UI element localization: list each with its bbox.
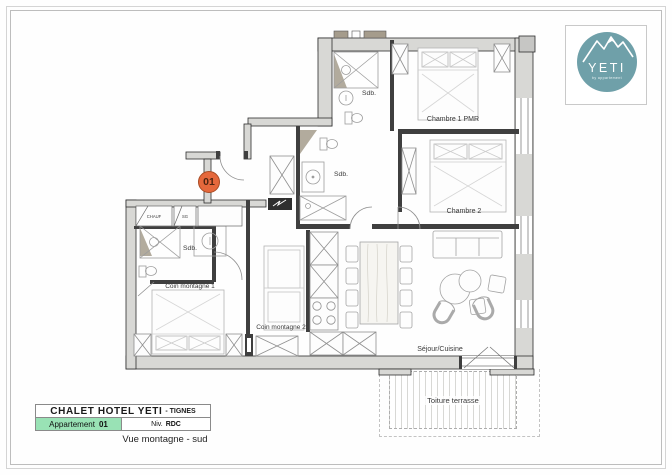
apartment-number: 01: [99, 420, 108, 429]
apartment-label: Appartement: [49, 420, 95, 429]
yeti-logo: YETI by appartement: [577, 32, 637, 92]
duct-symbols: [334, 31, 386, 38]
living-furniture: [346, 231, 506, 328]
hotel-name: CHALET HOTEL YETI: [50, 406, 162, 417]
title-block-header: CHALET HOTEL YETI - TIGNES: [36, 405, 210, 418]
room-label-sejour: Séjour/Cuisine: [417, 346, 463, 353]
room-label-coin1: Coin montagne 1: [165, 283, 215, 290]
logo-box: YETI by appartement: [565, 25, 647, 105]
unit-badge-number: 01: [203, 176, 215, 188]
title-block-row: Appartement 01 Niv. RDC: [36, 418, 210, 430]
view-caption: Vue montagne - sud: [100, 434, 230, 445]
room-label-chambre2: Chambre 2: [447, 208, 482, 215]
room-label-coin2: Coin montagne 2: [256, 324, 306, 331]
level-cell: Niv. RDC: [122, 418, 210, 430]
mountain-icon: [577, 32, 637, 64]
room-label-chauf: CHAUF: [147, 214, 162, 219]
level-label: Niv.: [151, 421, 163, 428]
drawing-sheet: Toiture terrasse: [0, 0, 672, 475]
title-block: CHALET HOTEL YETI - TIGNES Appartement 0…: [35, 404, 211, 431]
logo-tagline: by appartement: [592, 76, 622, 80]
room-label-sdb1: Sdb.: [362, 90, 376, 97]
room-label-sg: SG: [182, 214, 188, 219]
unit-badge: 01: [198, 171, 220, 193]
level-value: RDC: [166, 421, 181, 428]
logo-brand: YETI: [588, 62, 626, 75]
bathroom-fixtures: [139, 52, 378, 277]
room-label-sdb3: Sdb.: [183, 245, 197, 252]
hotel-location: - TIGNES: [165, 408, 195, 415]
room-label-sdb2: Sdb.: [334, 171, 348, 178]
room-label-chambre1: Chambre 1 PMR: [427, 116, 479, 123]
apartment-cell: Appartement 01: [36, 418, 122, 430]
